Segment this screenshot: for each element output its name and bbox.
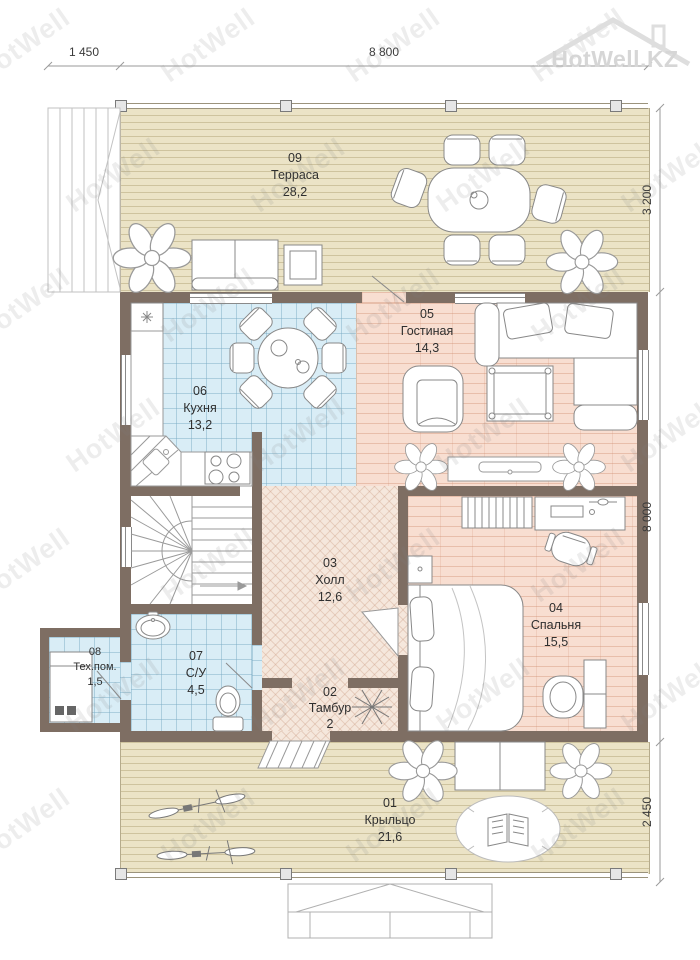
room-area: 21,6 [365, 829, 416, 846]
sink-icon [131, 436, 181, 486]
room-number: 08 [73, 645, 116, 660]
room-name: Холл [315, 572, 344, 589]
nightstand [408, 556, 432, 583]
room-number: 09 [271, 150, 319, 167]
room-number: 03 [315, 555, 344, 572]
room-number: 04 [531, 600, 581, 617]
room-name: Гостиная [401, 323, 453, 340]
plant-star-icon [352, 690, 392, 724]
dim-top-main: 8 800 [369, 45, 399, 59]
fridge-icon [131, 303, 163, 331]
room-number: 05 [401, 306, 453, 323]
room-area: 4,5 [186, 682, 206, 699]
room-area: 2 [309, 716, 351, 732]
bed [408, 585, 523, 731]
room-name: Крыльцо [365, 812, 416, 829]
steps [288, 884, 492, 938]
coffee-table [487, 366, 553, 421]
room-area: 28,2 [271, 184, 319, 201]
rug [456, 796, 560, 862]
room-label-bedroom: 04 Спальня 15,5 [531, 600, 581, 651]
dim-top-left: 1 450 [69, 45, 99, 59]
armchair [403, 366, 463, 432]
bicycle-icon [147, 784, 256, 868]
room-area: 14,3 [401, 340, 453, 357]
room-name: Тамбур [309, 700, 351, 716]
bedroom-side-table [584, 660, 606, 728]
terrace-sofa [192, 240, 278, 290]
stairs [131, 496, 252, 604]
room-name: С/У [186, 665, 206, 682]
room-number: 01 [365, 795, 416, 812]
room-name: Тех.пом. [73, 660, 116, 675]
dim-right-porch: 2 450 [640, 797, 654, 827]
room-label-kitchen: 06 Кухня 13,2 [183, 383, 216, 434]
room-label-living: 05 Гостиная 14,3 [401, 306, 453, 357]
room-area: 13,2 [183, 417, 216, 434]
floor-plan: 1 450 8 800 3 200 8 000 2 450 09 Терраса… [0, 0, 700, 960]
room-number: 02 [309, 684, 351, 700]
bedroom-chair [543, 676, 583, 718]
carport-hatch [48, 108, 120, 292]
room-label-terrace: 09 Терраса 28,2 [271, 150, 319, 201]
room-label-porch: 01 Крыльцо 21,6 [365, 795, 416, 846]
room-area: 15,5 [531, 634, 581, 651]
toilet-icon [213, 686, 243, 731]
room-number: 06 [183, 383, 216, 400]
office-chair [543, 527, 600, 571]
tv-stand [448, 457, 568, 481]
room-area: 1,5 [73, 675, 116, 690]
room-name: Спальня [531, 617, 581, 634]
room-number: 07 [186, 648, 206, 665]
room-label-techroom: 08 Тех.пом. 1,5 [73, 645, 116, 690]
kitchen-round-table [258, 328, 318, 388]
dim-right-house: 8 000 [640, 502, 654, 532]
desk [535, 497, 625, 530]
washbasin-icon [136, 612, 170, 639]
room-name: Кухня [183, 400, 216, 417]
entry-mat [258, 741, 330, 768]
room-area: 12,6 [315, 589, 344, 606]
room-label-tambour: 02 Тамбур 2 [309, 684, 351, 732]
plan-linework [0, 0, 700, 960]
storage-bench [455, 742, 545, 790]
room-label-bathroom: 07 С/У 4,5 [186, 648, 206, 699]
terrace-side-table [284, 245, 322, 285]
terrace-dining-table [428, 168, 530, 232]
wardrobe [462, 497, 532, 528]
stove-icon [205, 452, 250, 484]
room-name: Терраса [271, 167, 319, 184]
dim-right-terrace: 3 200 [640, 185, 654, 215]
room-label-hall: 03 Холл 12,6 [315, 555, 344, 606]
